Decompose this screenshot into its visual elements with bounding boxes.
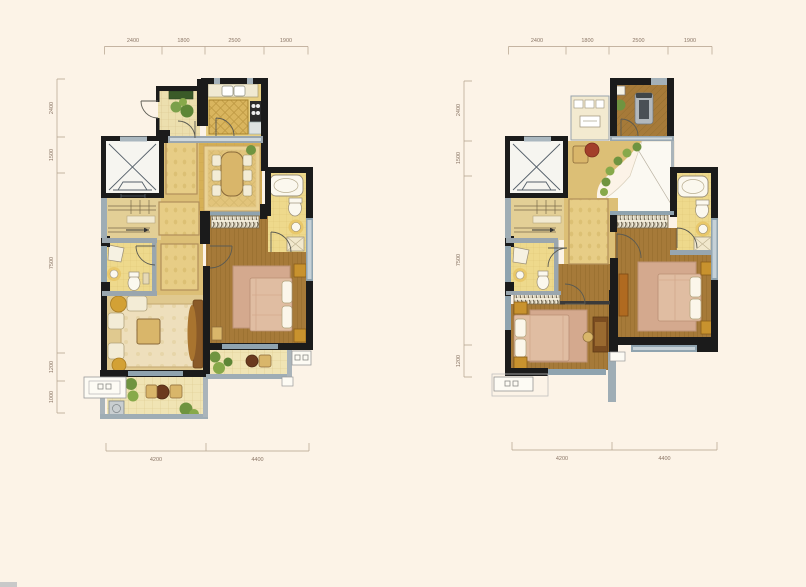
svg-text:2400: 2400 (49, 102, 55, 114)
svg-text:1800: 1800 (581, 38, 593, 44)
svg-text:1500: 1500 (456, 152, 462, 164)
svg-text:7500: 7500 (49, 257, 55, 269)
svg-text:1900: 1900 (684, 38, 696, 44)
svg-text:4400: 4400 (251, 457, 263, 463)
svg-text:1000: 1000 (49, 391, 55, 403)
svg-text:2400: 2400 (456, 104, 462, 116)
svg-text:7500: 7500 (456, 254, 462, 266)
svg-text:4200: 4200 (150, 457, 162, 463)
svg-text:4400: 4400 (658, 456, 670, 462)
svg-text:1800: 1800 (177, 38, 189, 44)
svg-text:2500: 2500 (228, 38, 240, 44)
svg-text:4200: 4200 (556, 456, 568, 462)
svg-text:2400: 2400 (127, 38, 139, 44)
svg-text:2500: 2500 (632, 38, 644, 44)
svg-text:1900: 1900 (280, 38, 292, 44)
svg-text:1500: 1500 (49, 149, 55, 161)
svg-text:1200: 1200 (456, 355, 462, 367)
svg-text:1200: 1200 (49, 361, 55, 373)
svg-text:2400: 2400 (531, 38, 543, 44)
